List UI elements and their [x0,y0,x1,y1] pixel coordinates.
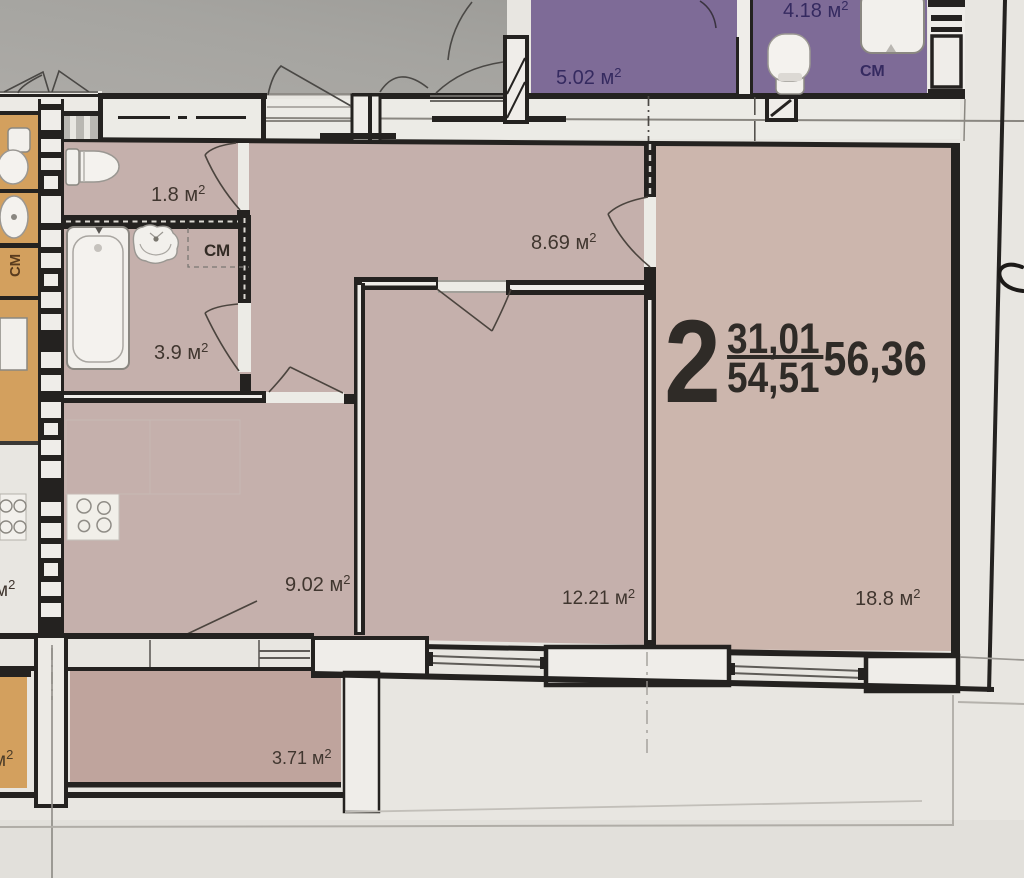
svg-text:18.8 м2: 18.8 м2 [855,586,920,610]
svg-text:8.69 м2: 8.69 м2 [531,230,596,254]
svg-text:3.9 м2: 3.9 м2 [154,340,208,364]
svg-text:54,51: 54,51 [727,354,820,401]
svg-text:3.71 м2: 3.71 м2 [272,746,332,768]
svg-text:12.21 м2: 12.21 м2 [562,586,635,609]
svg-text:5.02 м2: 5.02 м2 [556,65,621,89]
svg-text:4.18 м2: 4.18 м2 [783,0,848,22]
svg-text:СМ: СМ [7,254,24,277]
svg-text:2: 2 [664,296,720,428]
svg-text:1.8 м2: 1.8 м2 [151,182,205,206]
svg-text:56,36: 56,36 [823,332,926,386]
svg-text:СМ: СМ [204,241,230,260]
svg-text:9.02 м2: 9.02 м2 [285,572,350,596]
svg-text:СМ: СМ [860,63,885,80]
